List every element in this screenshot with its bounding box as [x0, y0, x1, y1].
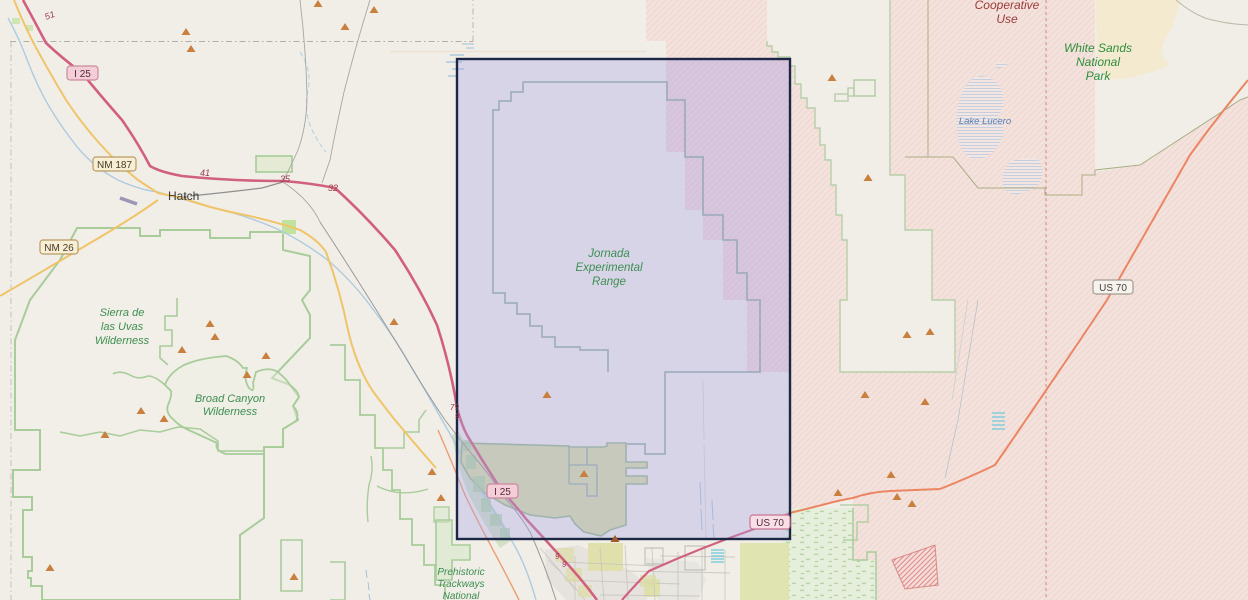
svg-text:National: National [443, 591, 480, 600]
svg-text:35: 35 [280, 174, 291, 184]
svg-text:Jornada: Jornada [587, 248, 630, 260]
svg-text:9: 9 [455, 412, 460, 421]
svg-text:9: 9 [555, 552, 560, 561]
svg-text:Experimental: Experimental [575, 262, 643, 274]
svg-text:Hatch: Hatch [168, 189, 199, 203]
svg-text:National: National [1076, 55, 1120, 69]
svg-text:Park: Park [1086, 69, 1112, 83]
svg-text:US 70: US 70 [1099, 283, 1127, 294]
svg-text:Broad Canyon: Broad Canyon [195, 393, 265, 405]
svg-text:Use: Use [996, 12, 1018, 26]
svg-text:las Uvas: las Uvas [101, 321, 144, 333]
svg-text:Sierra de: Sierra de [100, 307, 145, 319]
svg-text:I 25: I 25 [74, 69, 91, 80]
svg-text:White Sands: White Sands [1064, 41, 1132, 55]
svg-text:9: 9 [562, 560, 567, 569]
svg-text:32: 32 [328, 183, 338, 193]
svg-text:Range: Range [592, 276, 626, 288]
svg-text:Trackways: Trackways [437, 579, 484, 590]
svg-text:NM 187: NM 187 [97, 160, 132, 171]
svg-text:Cooperative: Cooperative [975, 0, 1040, 12]
svg-text:Lake Lucero: Lake Lucero [959, 116, 1011, 127]
svg-text:Prehistoric: Prehistoric [437, 567, 484, 578]
svg-text:79: 79 [450, 403, 459, 412]
svg-text:US 70: US 70 [756, 518, 784, 529]
svg-text:41: 41 [200, 168, 210, 178]
svg-text:Wilderness: Wilderness [95, 335, 150, 347]
svg-text:Wilderness: Wilderness [203, 406, 258, 418]
svg-text:NM 26: NM 26 [44, 243, 74, 254]
svg-text:I 25: I 25 [494, 487, 511, 498]
